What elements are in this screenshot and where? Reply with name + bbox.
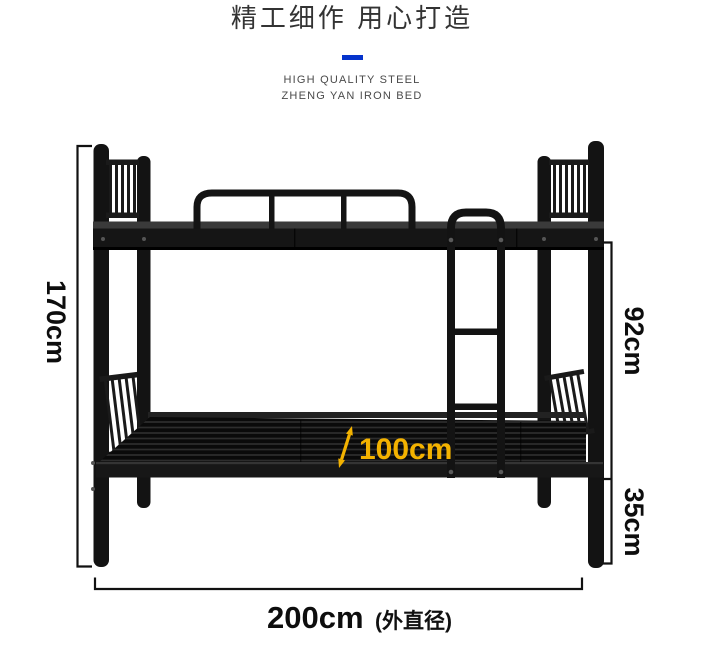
lower-bunk-platform <box>91 412 603 491</box>
upper-section-label: 92cm <box>619 306 649 375</box>
length-dimension-line <box>95 578 582 590</box>
lower-section-label: 35cm <box>619 487 649 556</box>
bed-posts <box>94 141 605 568</box>
total-height-dimension-line <box>78 146 93 567</box>
inner-length-label: 100cm <box>359 433 452 466</box>
bunk-bed-illustration <box>91 141 604 568</box>
product-detail-page: 精工细作 用心打造 HIGH QUALITY STEEL ZHENG YAN I… <box>0 0 704 669</box>
top-bunk-frame <box>93 222 604 251</box>
total-height-label: 170cm <box>41 280 71 364</box>
length-label-group: 200cm (外直径) <box>267 600 452 635</box>
length-value: 200cm <box>267 600 364 635</box>
upper-right-headboard <box>549 160 589 219</box>
upper-left-headboard <box>106 160 139 219</box>
length-note: (外直径) <box>375 609 452 633</box>
bunk-bed-dimension-diagram: 170cm 92cm 35cm 200cm (外直径) 100cm <box>0 0 704 669</box>
